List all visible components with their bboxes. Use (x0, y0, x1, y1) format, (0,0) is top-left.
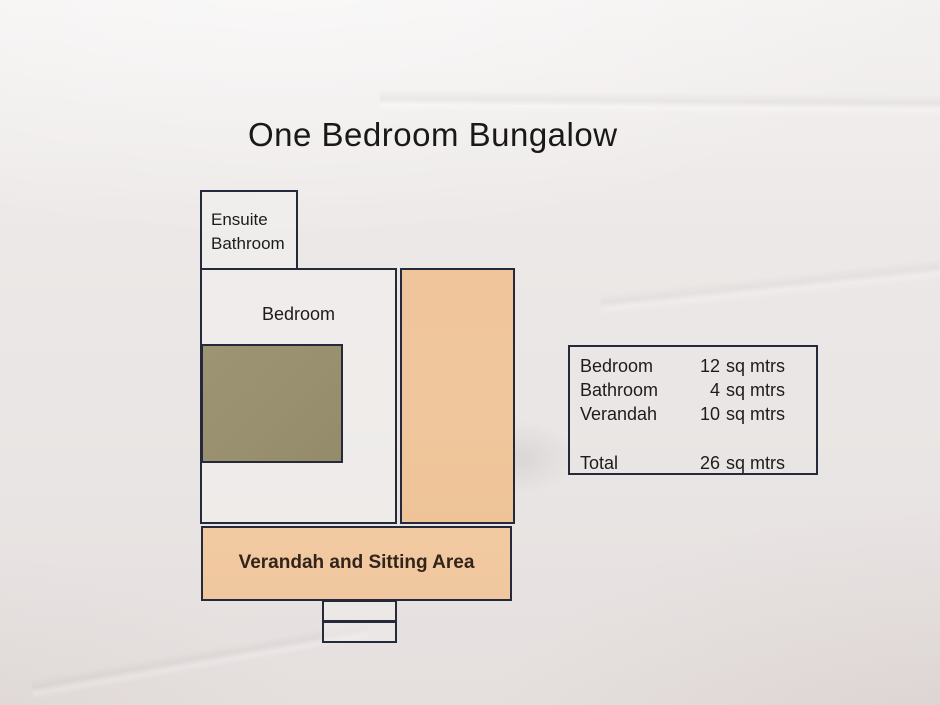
entry-step-2 (322, 621, 397, 643)
table-row-qty: 4 (698, 378, 720, 402)
side-passage-area (400, 268, 515, 524)
area-table: Bedroom 12 sq mtrs Bathroom 4 sq mtrs Ve… (568, 345, 818, 475)
table-total-label: Total (580, 451, 698, 475)
table-row: Verandah 10 sq mtrs (580, 402, 806, 426)
table-row-label: Bathroom (580, 378, 698, 402)
table-row-unit: sq mtrs (726, 378, 785, 402)
table-row-qty: 10 (698, 402, 720, 426)
table-total-row: Total 26 sq mtrs (580, 451, 806, 475)
table-row: Bedroom 12 sq mtrs (580, 354, 806, 378)
table-total-qty: 26 (698, 451, 720, 475)
table-row-label: Bedroom (580, 354, 698, 378)
table-blank-row (580, 426, 806, 451)
table-row: Bathroom 4 sq mtrs (580, 378, 806, 402)
floor-plan-photo: One Bedroom Bungalow Ensuite Bathroom Be… (0, 0, 940, 705)
table-row-label: Verandah (580, 402, 698, 426)
room-verandah: Verandah and Sitting Area (201, 526, 512, 601)
table-row-qty: 12 (698, 354, 720, 378)
room-label-verandah: Verandah and Sitting Area (239, 552, 475, 574)
room-label-bedroom: Bedroom (262, 304, 335, 324)
table-total-unit: sq mtrs (726, 451, 785, 475)
table-row-unit: sq mtrs (726, 354, 785, 378)
table-row-unit: sq mtrs (726, 402, 785, 426)
paper-crease (598, 231, 940, 339)
page-title: One Bedroom Bungalow (248, 116, 618, 154)
bed-rect (201, 344, 343, 463)
room-label-ensuite: Ensuite Bathroom (211, 208, 295, 256)
entry-step-1 (322, 600, 397, 622)
room-ensuite-bathroom: Ensuite Bathroom (200, 190, 298, 270)
